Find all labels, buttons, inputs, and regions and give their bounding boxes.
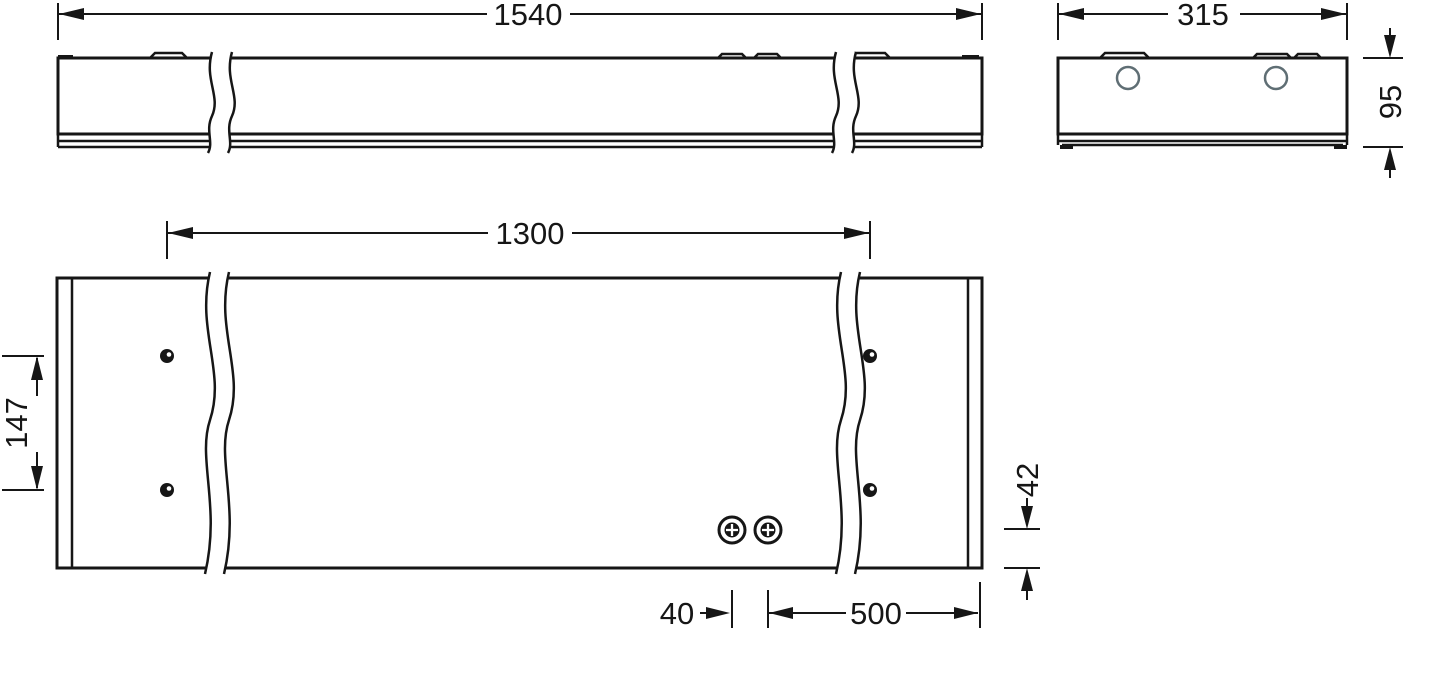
dimension-overall-length: 1540 [58,0,982,40]
arrowhead-down-icon [31,466,43,490]
side-view [58,52,982,153]
phillips-screw-icon [755,517,781,543]
dim-label-overall-height: 95 [1373,85,1408,119]
foot-nub [1060,145,1073,149]
end-view-diffuser-lines [1058,134,1347,145]
dimension-screw-spacing: 40 [660,590,768,631]
arrowhead-left-icon [769,607,793,619]
knockout-hole-icon [1265,67,1287,89]
dimension-mounting-width: 147 [0,356,44,490]
foot-nub [1334,145,1347,149]
arrowhead-up-icon [31,356,43,380]
dimension-screw-end-distance: 500 [769,582,980,631]
suspension-screw-icon [863,483,877,497]
arrowhead-up-icon [1021,568,1033,591]
knockout-hole-icon [1117,67,1139,89]
dim-label-mounting-width: 147 [0,397,34,449]
arrowhead-right-icon [954,607,978,619]
dim-label-mounting-edge-offset: 42 [1010,463,1045,497]
plan-view [57,272,982,574]
dimension-mounting-length: 1300 [167,216,870,259]
dimension-overall-height: 95 [1363,28,1408,178]
extension-lines [1004,529,1040,568]
arrowhead-right-icon [844,227,869,239]
arrowhead-left-icon [1059,8,1084,20]
dimension-mounting-edge-offset: 42 [1004,463,1045,600]
arrowhead-right-icon [1321,8,1346,20]
arrowhead-right-icon [956,8,981,20]
extension-lines [732,590,768,628]
arrowhead-down-icon [1021,506,1033,529]
arrowhead-up-icon [1384,147,1396,170]
dim-label-mounting-length: 1300 [496,216,565,251]
suspension-screw-icon [160,483,174,497]
dimension-overall-width: 315 [1058,0,1347,40]
arrowhead-down-icon [1384,35,1396,58]
dim-label-screw-end-distance: 500 [850,596,902,631]
arrowhead-left-icon [59,8,84,20]
end-view [1058,53,1347,149]
dim-label-overall-length: 1540 [494,0,563,32]
phillips-screw-icon [719,517,745,543]
dim-label-screw-spacing: 40 [660,596,694,631]
technical-drawing: 1540 315 95 [0,0,1440,684]
arrowhead-left-icon [168,227,193,239]
end-view-body [1058,58,1347,134]
suspension-screw-icon [160,349,174,363]
suspension-screw-icon [863,349,877,363]
arrowhead-right-icon [706,607,730,619]
dim-label-overall-width: 315 [1177,0,1229,32]
